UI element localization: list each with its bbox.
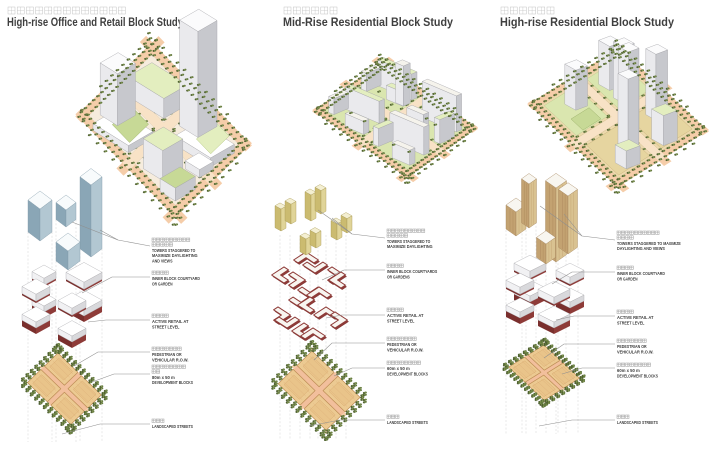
svg-text:OR GARDEN: OR GARDEN xyxy=(617,276,638,281)
svg-text:OR GARDEN: OR GARDEN xyxy=(152,281,173,286)
svg-text:DEVELOPMENT BLOCKS: DEVELOPMENT BLOCKS xyxy=(387,371,428,376)
svg-text:VEHICULAR R.O.W.: VEHICULAR R.O.W. xyxy=(617,349,654,354)
svg-text:LANDSCAPED STREETS: LANDSCAPED STREETS xyxy=(387,420,428,425)
svg-text:LANDSCAPED STREETS: LANDSCAPED STREETS xyxy=(617,420,658,425)
svg-text:AND VIEWS: AND VIEWS xyxy=(152,258,173,263)
svg-text:High-rise Office and Retail Bl: High-rise Office and Retail Block Study xyxy=(7,17,183,29)
svg-text:MAXIMIZE DAYLIGHTING: MAXIMIZE DAYLIGHTING xyxy=(387,244,433,249)
svg-text:LANDSCAPED STREETS: LANDSCAPED STREETS xyxy=(152,424,193,429)
svg-text:VEHICULAR R.O.W.: VEHICULAR R.O.W. xyxy=(387,347,424,352)
svg-text:STREET LEVEL: STREET LEVEL xyxy=(387,318,415,323)
svg-text:STREET LEVEL: STREET LEVEL xyxy=(152,324,180,329)
svg-text:STREET LEVEL: STREET LEVEL xyxy=(617,320,645,325)
svg-text:VEHICULAR R.O.W.: VEHICULAR R.O.W. xyxy=(152,357,189,362)
svg-text:DEVELOPMENT BLOCKS: DEVELOPMENT BLOCKS xyxy=(617,373,658,378)
svg-text:OR GARDENS: OR GARDENS xyxy=(387,274,410,279)
svg-text:Mid-Rise Residential Block Stu: Mid-Rise Residential Block Study xyxy=(283,17,454,29)
svg-text:High-rise Residential Block St: High-rise Residential Block Study xyxy=(500,17,675,29)
svg-text:DEVELOPMENT BLOCKS: DEVELOPMENT BLOCKS xyxy=(152,380,193,385)
svg-text:DAYLIGHTING AND VIEWS: DAYLIGHTING AND VIEWS xyxy=(617,246,665,251)
